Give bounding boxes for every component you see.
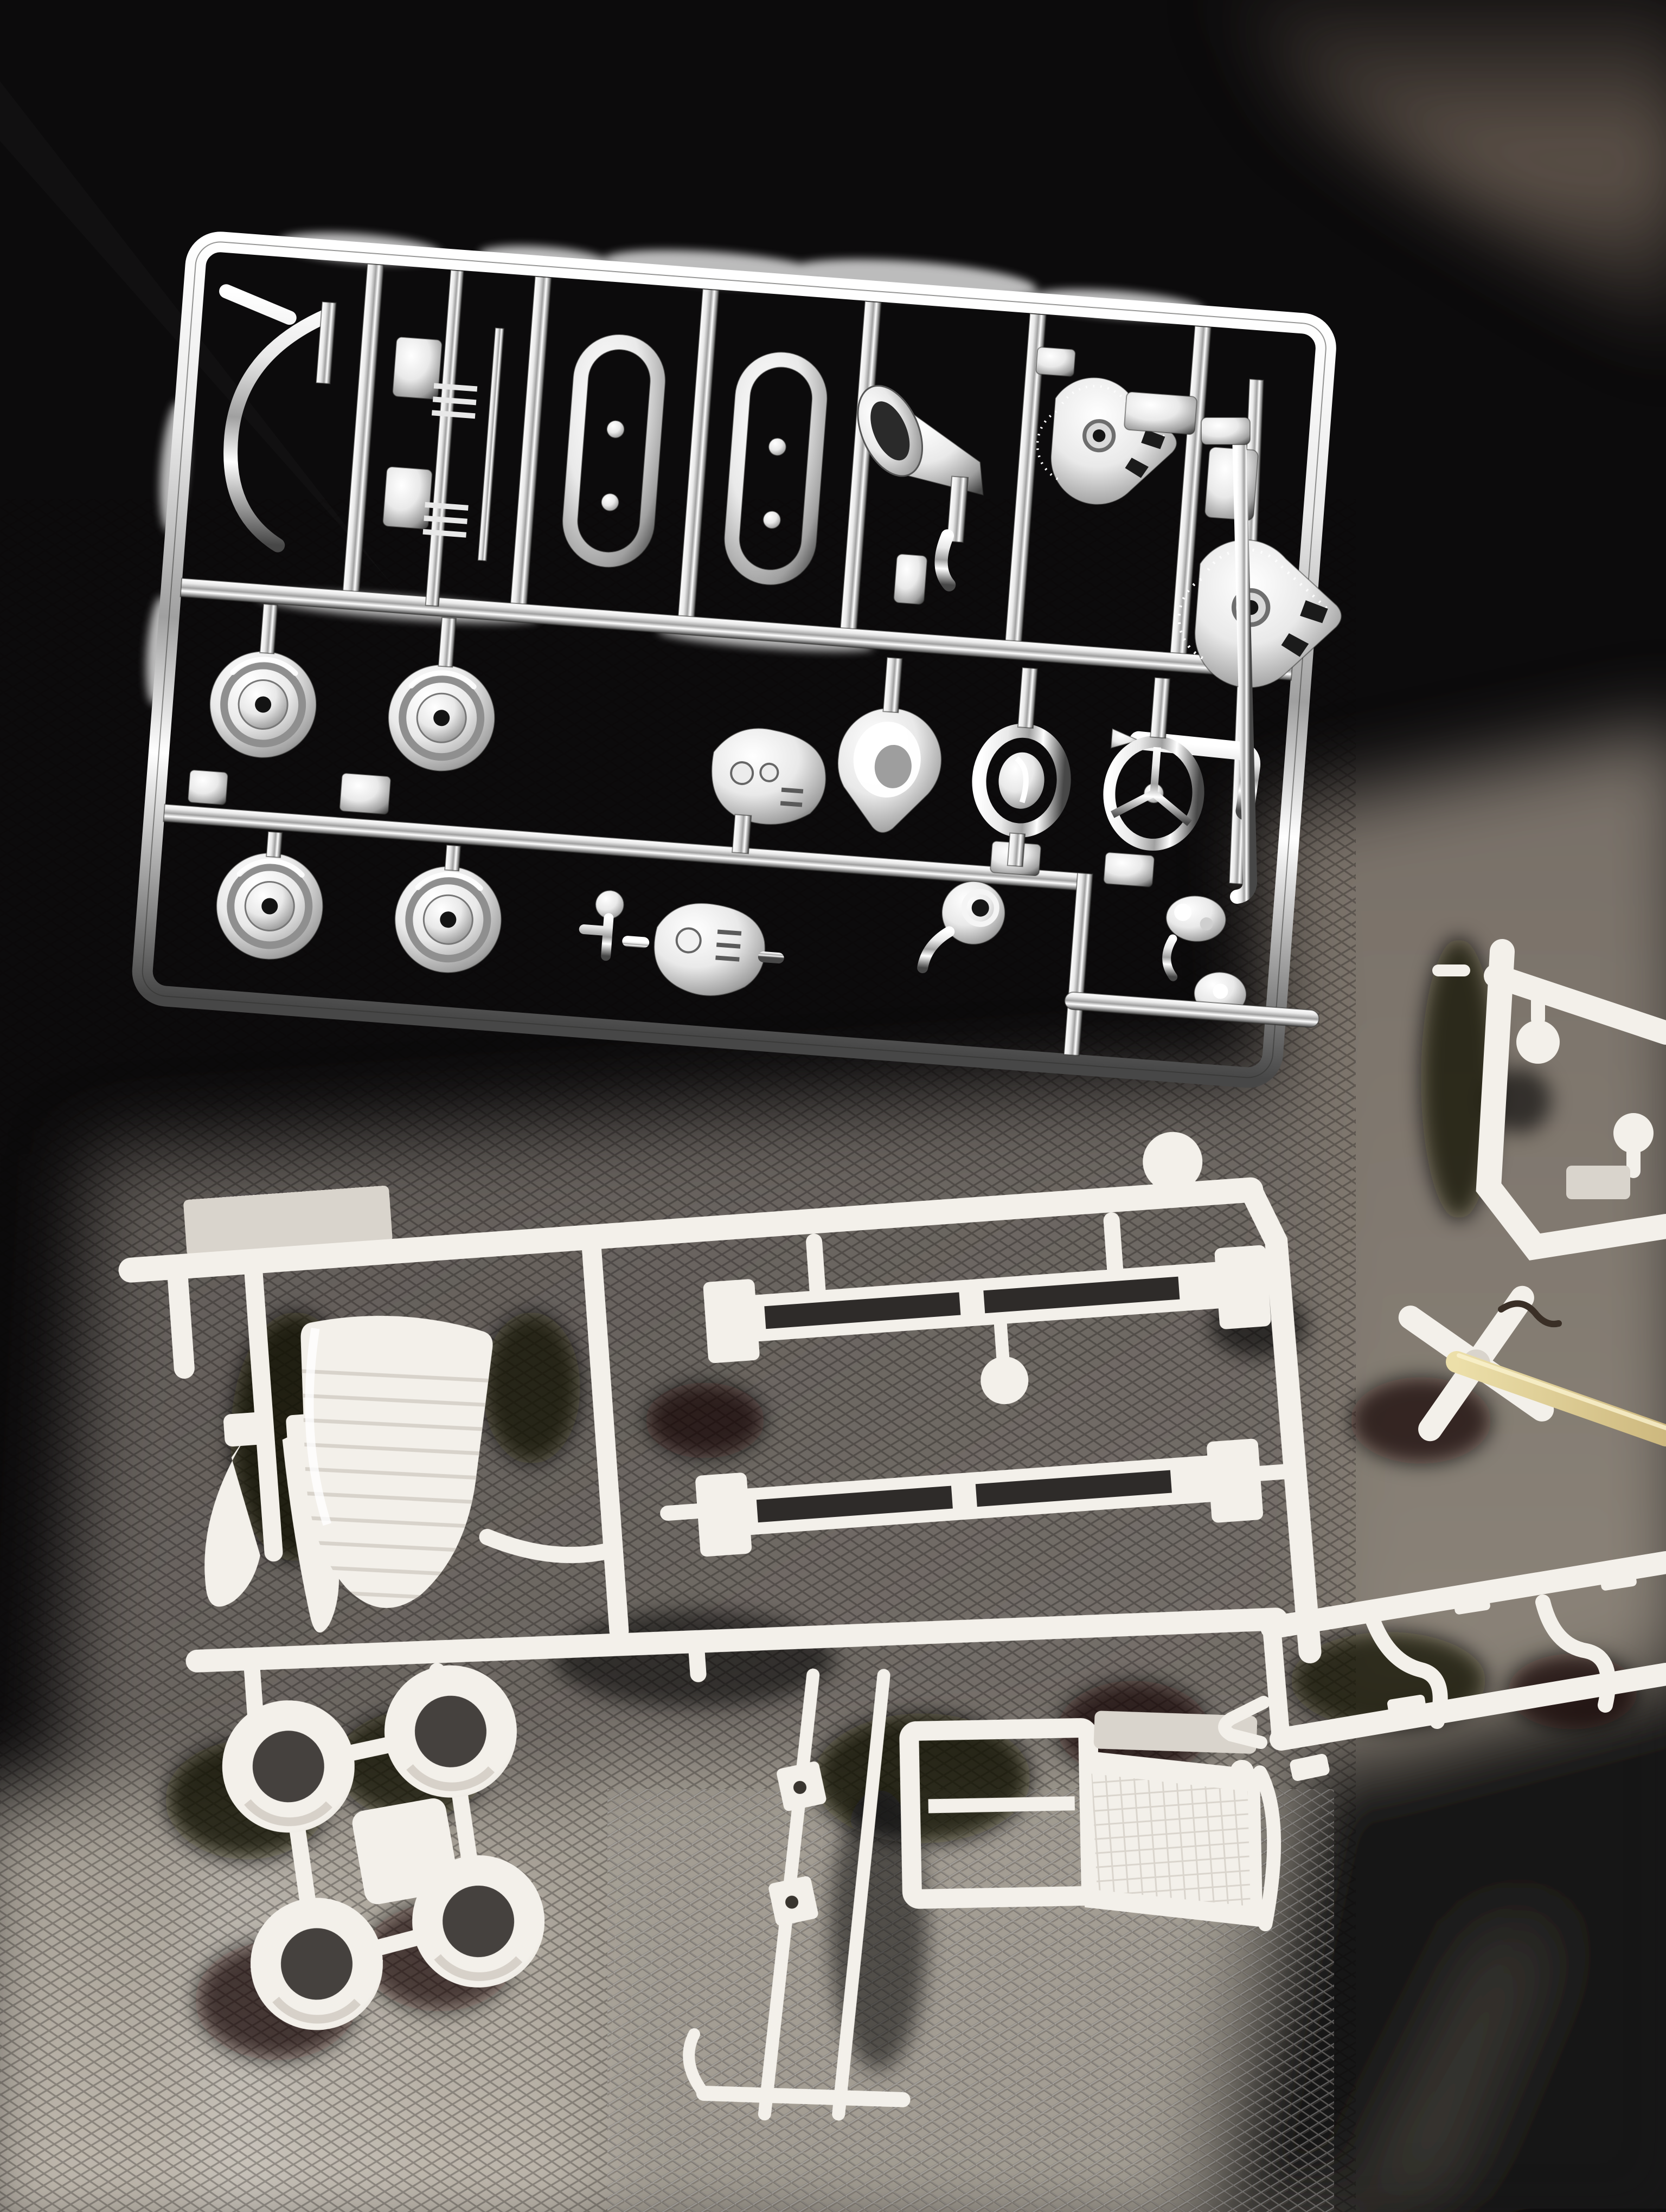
left-end-rail [1272,1628,1281,1739]
center-plate [350,1796,460,1906]
left-stub [178,1279,184,1369]
block-tab [1566,1166,1630,1199]
ball-knob-2 [1613,1113,1654,1153]
knob-stub [1001,1324,1003,1359]
ball-knob-1 [1516,1020,1560,1064]
photo-model-kit-sprues: Top-down photograph of plastic scale-mod… [0,0,1666,2212]
